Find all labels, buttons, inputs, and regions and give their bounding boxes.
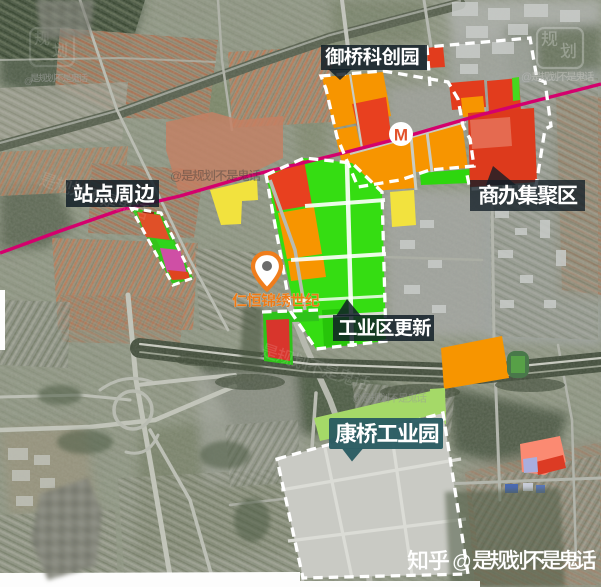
- svg-text:@: @: [521, 72, 532, 84]
- svg-text:@: @: [352, 393, 362, 404]
- svg-text:@: @: [170, 169, 182, 183]
- svg-text:M: M: [394, 126, 408, 145]
- svg-text:@: @: [452, 551, 472, 573]
